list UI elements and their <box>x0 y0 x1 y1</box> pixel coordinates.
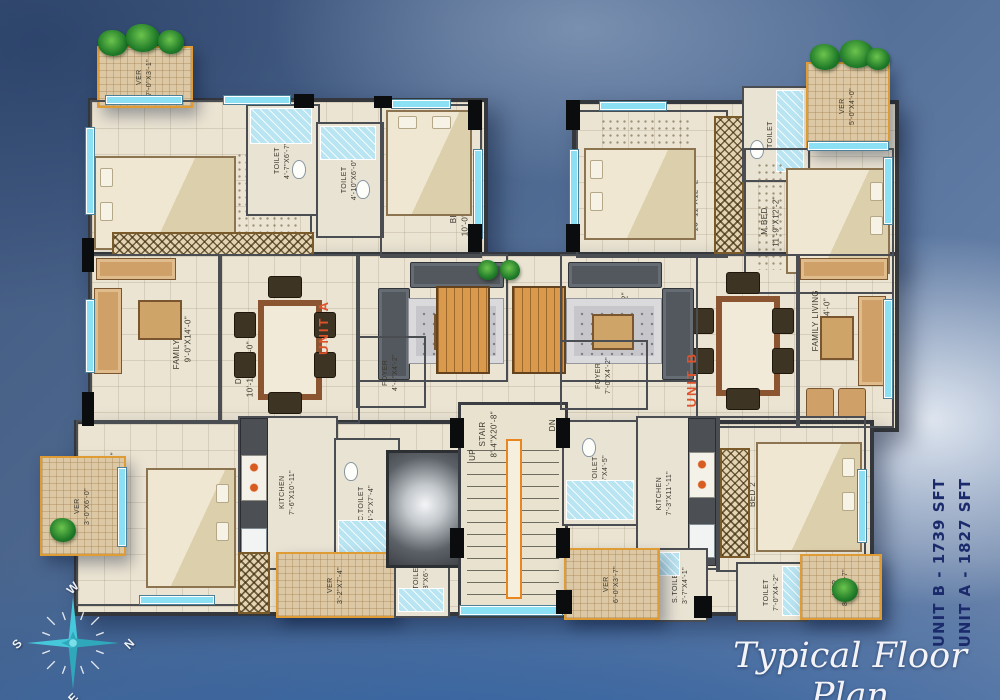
column <box>468 100 482 130</box>
column <box>566 100 580 130</box>
toilet-wc <box>356 180 370 199</box>
room-a-ver-left: VER3'-0"X6'-0" <box>40 456 126 556</box>
room-label: TOILET4'-7"X6'-7" <box>273 142 293 179</box>
chair <box>806 388 834 418</box>
column <box>374 96 392 108</box>
staircase: STAIR8'-4"X20'-8" UP DN <box>458 402 568 618</box>
unit-b-marker: UNIT B <box>684 352 699 407</box>
plant <box>810 44 840 70</box>
plant <box>126 24 160 52</box>
stove <box>241 455 267 501</box>
pillow <box>216 522 229 541</box>
pillow <box>100 168 113 187</box>
dining-chair <box>314 352 336 378</box>
window <box>858 470 866 542</box>
unit-b-area-label: UNIT B - 1739 SFT <box>930 478 948 647</box>
pillow <box>100 202 113 221</box>
window <box>118 468 126 546</box>
dining-table <box>716 296 780 396</box>
bed <box>146 468 236 588</box>
window <box>392 100 450 108</box>
shower <box>250 108 312 144</box>
column <box>82 238 94 272</box>
dining-chair <box>772 348 794 374</box>
shower <box>398 588 444 612</box>
dining-chair <box>234 312 256 338</box>
window <box>86 300 94 372</box>
stove <box>689 452 715 498</box>
window <box>86 128 94 214</box>
column <box>566 224 580 252</box>
bed <box>386 110 472 216</box>
planter <box>478 260 498 280</box>
bed <box>756 442 862 552</box>
column <box>556 418 570 448</box>
plant <box>98 30 128 56</box>
pillow <box>590 160 603 179</box>
dining-chair <box>726 388 760 410</box>
column <box>468 224 482 252</box>
unit-a-area-label: UNIT A - 1827 SFT <box>956 478 974 647</box>
shower <box>320 126 376 160</box>
compass-star <box>25 595 121 691</box>
column <box>694 596 712 618</box>
pillow <box>398 116 417 129</box>
dining-table <box>258 300 322 400</box>
pillow <box>590 192 603 211</box>
entry-door-unit-b <box>512 286 566 374</box>
stair-label: STAIR8'-4"X20'-8" <box>477 411 500 457</box>
sofa <box>858 296 886 386</box>
toilet-wc <box>582 438 596 457</box>
dining-chair <box>268 392 302 414</box>
bench <box>96 258 176 280</box>
sofa <box>568 262 662 288</box>
column <box>556 528 570 558</box>
column <box>294 94 314 108</box>
sofa <box>94 288 122 374</box>
room-b-ver-top: VER5'-0"X4'-0" <box>806 62 890 150</box>
pillow <box>432 116 451 129</box>
room-a-ver-bottom: VER3'-2"X7'-4" <box>276 552 396 618</box>
compass-n-label: N <box>121 636 137 652</box>
window <box>140 596 214 604</box>
bed <box>584 148 696 240</box>
plant <box>866 48 890 70</box>
window <box>106 96 182 104</box>
toilet-wc <box>292 160 306 179</box>
room-label: C.TOILET4'-2"X7'-4" <box>357 485 377 522</box>
wardrobe <box>238 552 270 614</box>
shower <box>658 552 680 576</box>
room-label: VER3'-2"X7'-4" <box>326 567 346 604</box>
shower <box>566 480 634 520</box>
stair-up-label: UP <box>467 449 479 461</box>
wardrobe <box>720 448 750 558</box>
chair <box>838 388 866 418</box>
dining-chair <box>772 308 794 334</box>
pillow <box>216 484 229 503</box>
column <box>450 418 464 448</box>
side-table <box>820 316 854 360</box>
window <box>600 102 666 110</box>
compass-s-label: S <box>9 636 25 652</box>
unit-a-marker: UNIT A <box>316 300 331 355</box>
window <box>884 300 892 398</box>
wardrobe <box>112 232 314 256</box>
bedside-rug <box>600 118 692 144</box>
window <box>460 606 562 615</box>
plant <box>158 30 184 54</box>
pillow <box>842 458 855 477</box>
pillow <box>870 182 883 201</box>
compass-rose: W N E S <box>25 595 121 691</box>
column <box>556 590 572 614</box>
room-label: VER6'-0"X3'-7" <box>602 566 622 603</box>
column <box>450 528 464 558</box>
room-b-ver-bottom: VER6'-0"X3'-7" <box>564 548 660 620</box>
room-b-foyer: FOYER7'-0"X4'-2" <box>560 340 648 410</box>
pillow <box>842 492 855 511</box>
room-label: KITCHEN7'-6"X10'-11" <box>278 470 298 515</box>
toilet-wc <box>344 462 358 481</box>
side-table <box>138 300 182 340</box>
floor-plan-image: VER7'-0"X3'-1" M.BED12'-0"X14'-0" TOILET… <box>0 0 1000 700</box>
room-label: VER5'-0"X4'-0" <box>838 88 858 125</box>
room-label: FOYER7'-0"X4'-2" <box>594 357 614 394</box>
bench <box>800 258 888 280</box>
wardrobe <box>714 116 744 254</box>
plant <box>832 578 858 602</box>
window <box>884 158 892 224</box>
window <box>808 142 888 150</box>
page-title: Typical Floor Plan <box>715 636 985 700</box>
stair-rail <box>506 439 522 599</box>
room-label: VER3'-0"X6'-0" <box>73 488 93 525</box>
column <box>82 392 94 426</box>
room-label: FOYER4'-4"X4'-2" <box>381 354 401 391</box>
dining-chair <box>234 352 256 378</box>
dining-chair <box>726 272 760 294</box>
room-label: TOILET7'-0"X4'-2" <box>762 574 782 611</box>
room-a-foyer: FOYER4'-4"X4'-2" <box>356 336 426 408</box>
compass-e-label: E <box>65 690 81 700</box>
entry-door-unit-a <box>436 286 490 374</box>
plant <box>50 518 76 542</box>
dining-chair <box>268 276 302 298</box>
room-label: KITCHEN7'-3"X11'-11" <box>655 471 675 516</box>
planter <box>500 260 520 280</box>
window <box>224 96 290 104</box>
room-label: VER7'-0"X3'-1" <box>135 59 155 96</box>
pillow <box>870 216 883 235</box>
